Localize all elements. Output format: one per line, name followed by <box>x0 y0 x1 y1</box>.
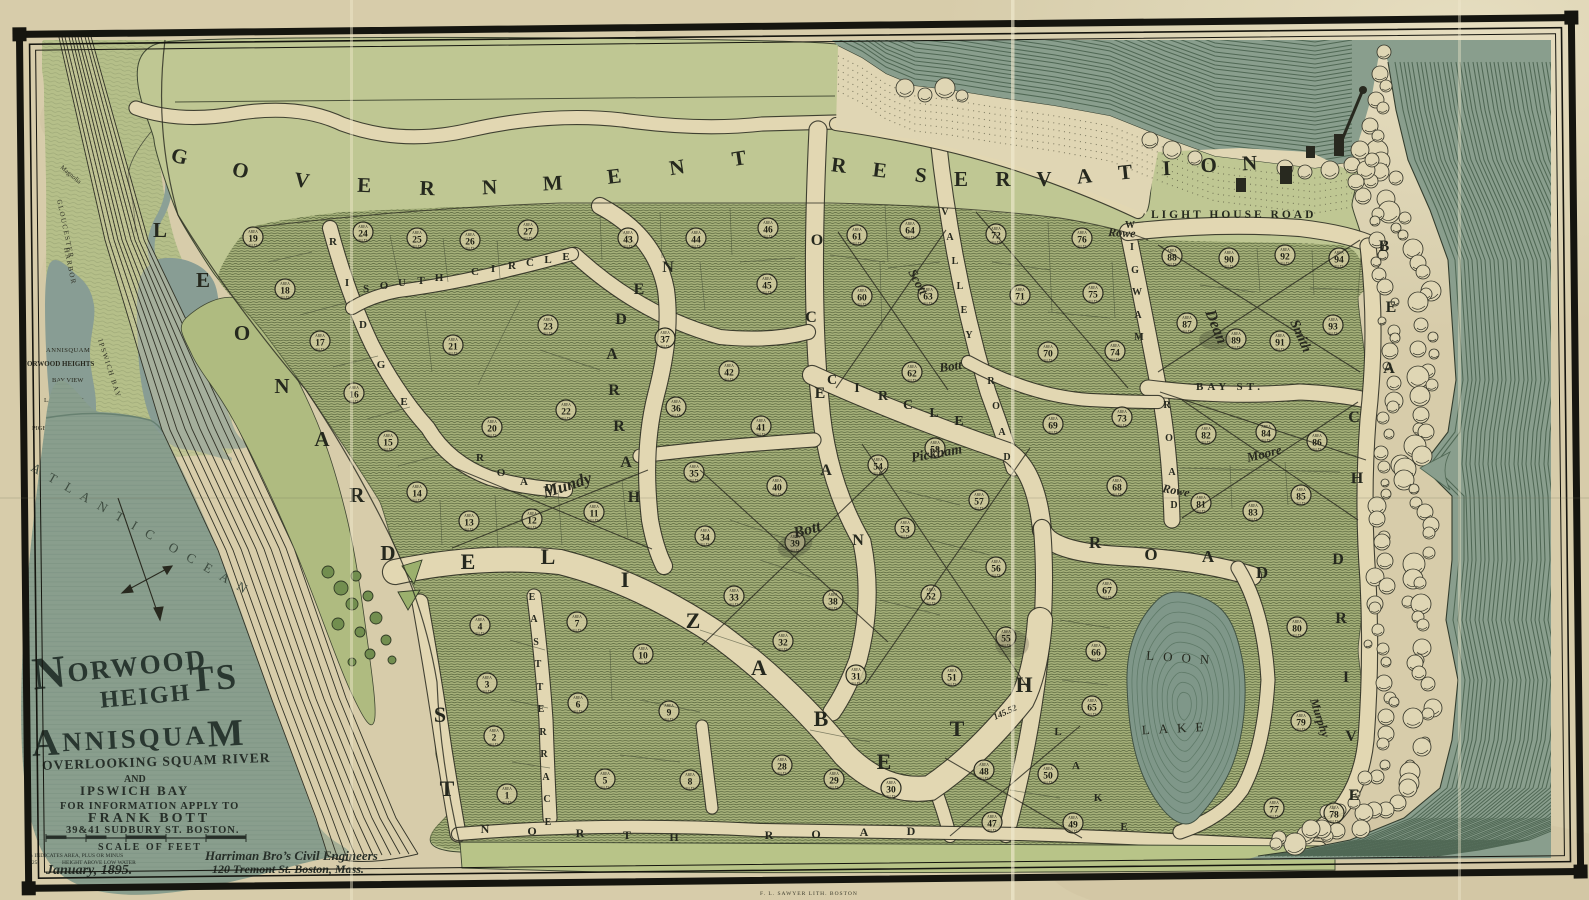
svg-text:F. L. SAWYER LITH. BOSTON: F. L. SAWYER LITH. BOSTON <box>760 891 858 897</box>
